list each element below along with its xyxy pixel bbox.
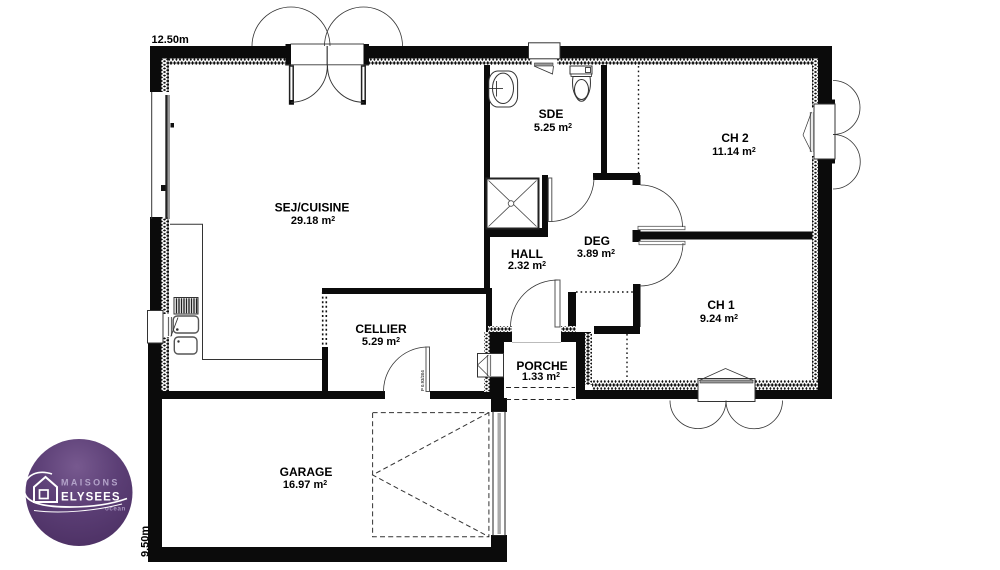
svg-text:MAISONS: MAISONS (61, 478, 120, 488)
svg-text:16.97 m2: 16.97 m2 (283, 479, 327, 491)
svg-text:9.50m: 9.50m (140, 526, 152, 557)
svg-text:P 0.93/204: P 0.93/204 (420, 370, 425, 391)
svg-text:ocean: ocean (105, 506, 126, 513)
svg-text:CH 2: CH 2 (721, 131, 749, 145)
svg-text:CELLIER: CELLIER (355, 322, 407, 336)
svg-text:5.29 m2: 5.29 m2 (362, 336, 400, 348)
svg-text:GARAGE: GARAGE (280, 465, 333, 479)
svg-text:5.25 m2: 5.25 m2 (534, 122, 572, 134)
svg-text:ELYSEES: ELYSEES (61, 492, 121, 504)
svg-text:DEG: DEG (584, 234, 610, 248)
svg-text:CH 1: CH 1 (707, 298, 735, 312)
svg-text:29.18 m2: 29.18 m2 (291, 215, 335, 227)
svg-text:3.89 m2: 3.89 m2 (577, 248, 615, 260)
svg-text:SEJ/CUISINE: SEJ/CUISINE (275, 201, 350, 215)
svg-text:HALL: HALL (511, 247, 543, 261)
svg-text:12.50m: 12.50m (152, 34, 190, 46)
svg-text:9.24 m2: 9.24 m2 (700, 313, 738, 325)
svg-text:1.33 m2: 1.33 m2 (522, 371, 560, 383)
svg-text:SDE: SDE (539, 107, 564, 121)
svg-text:11.14 m2: 11.14 m2 (712, 146, 756, 158)
svg-text:2.32 m2: 2.32 m2 (508, 260, 546, 272)
